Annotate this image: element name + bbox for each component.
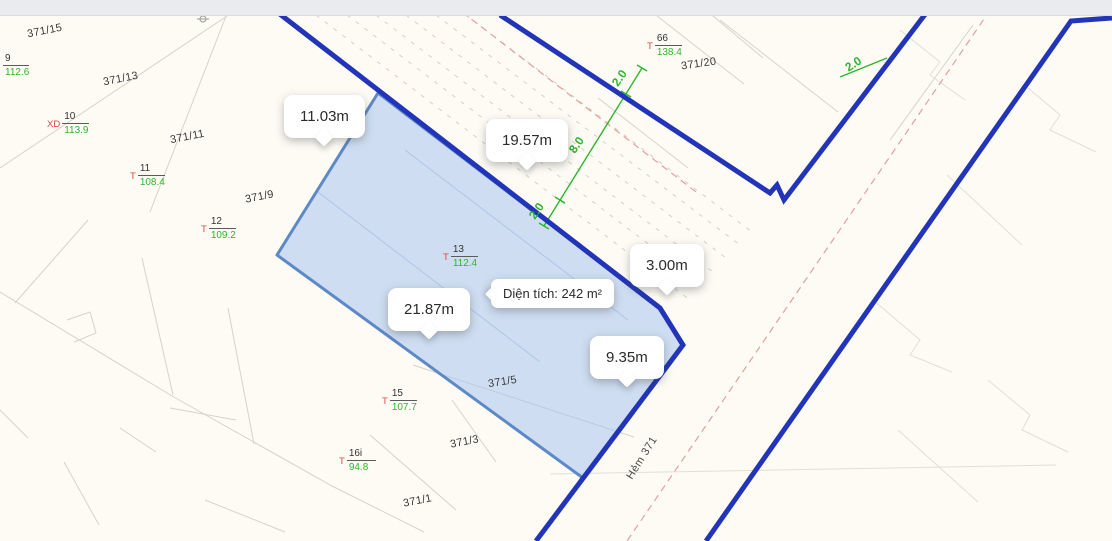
selected-parcel-polygon[interactable]: [277, 93, 683, 478]
lot-mark-prefix: T: [201, 225, 207, 235]
measurement-value: 9.35m: [606, 349, 648, 366]
cadastral-map-drawing: [0, 0, 1112, 541]
survey-marker-icon: [197, 16, 209, 22]
road-line-right: [706, 18, 1112, 541]
top-bar: [0, 0, 1112, 16]
lot-mark-area: 138.4: [655, 46, 682, 58]
lot-mark-area: 109.2: [209, 229, 236, 241]
lot-mark-area: 107.7: [390, 401, 417, 413]
measurement-value: 3.00m: [646, 257, 688, 274]
lot-mark-number: 9: [3, 53, 29, 66]
lot-mark: T 12109.2: [201, 216, 236, 241]
measurement-tooltip: 21.87m: [388, 288, 470, 331]
lot-mark: T 15107.7: [382, 388, 417, 413]
measurement-value: 19.57m: [502, 132, 552, 149]
lot-mark: T 16i94.8: [339, 448, 376, 473]
measurement-tooltip: 9.35m: [590, 336, 664, 379]
lot-mark-area: 112.4: [451, 257, 478, 269]
lot-mark-number: 11: [138, 163, 165, 176]
measurement-tooltip: 19.57m: [486, 119, 568, 162]
dimension-lines: [539, 58, 887, 229]
lot-mark-number: 66: [655, 33, 682, 46]
area-value: Diện tích: 242 m²: [503, 286, 602, 301]
lot-mark: 9112.6: [1, 53, 29, 78]
lot-mark: XD 10113.9: [47, 111, 89, 136]
lot-mark-prefix: T: [130, 172, 136, 182]
lot-mark-area: 113.9: [62, 124, 89, 136]
area-tooltip: Diện tích: 242 m²: [491, 279, 614, 308]
measurement-value: 21.87m: [404, 301, 454, 318]
lot-mark-area: 94.8: [347, 461, 376, 473]
measurement-value: 11.03m: [300, 108, 349, 125]
lot-mark-area: 108.4: [138, 176, 165, 188]
lot-mark-area: 112.6: [3, 66, 29, 78]
road-line-middle: [500, 0, 936, 200]
lot-mark-number: 16i: [347, 448, 376, 461]
measurement-tooltip: 3.00m: [630, 244, 704, 287]
lot-mark-prefix: XD: [47, 120, 60, 130]
lot-mark-number: 12: [209, 216, 236, 229]
lot-mark-number: 13: [451, 244, 478, 257]
measurement-tooltip: 11.03m: [284, 95, 365, 138]
lot-mark-prefix: T: [382, 397, 388, 407]
lot-mark-number: 10: [62, 111, 89, 124]
lot-mark-prefix: T: [443, 253, 449, 263]
lot-mark: T 13112.4: [443, 244, 478, 269]
lot-mark-number: 15: [390, 388, 417, 401]
map-canvas[interactable]: 371/15 371/13 371/11 371/9 371/20 371/5 …: [0, 0, 1112, 541]
lot-mark-prefix: T: [647, 42, 653, 52]
lot-mark: T 11108.4: [130, 163, 165, 188]
lot-mark: T 66138.4: [647, 33, 682, 58]
lot-mark-prefix: T: [339, 457, 345, 467]
